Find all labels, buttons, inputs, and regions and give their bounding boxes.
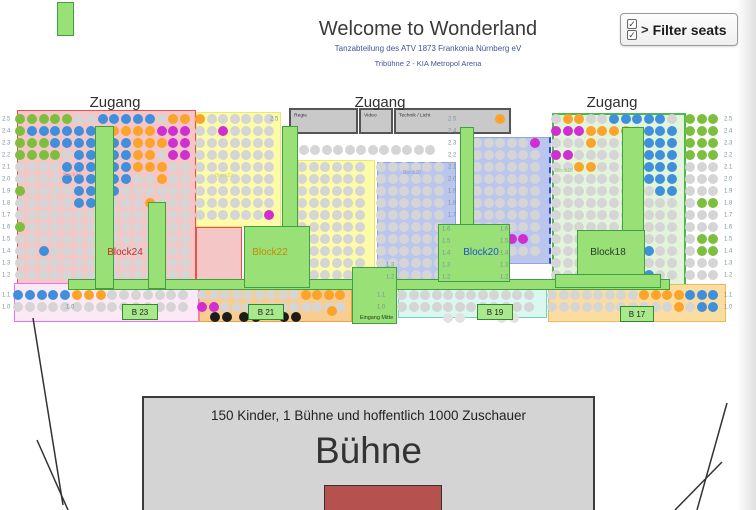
seat[interactable] bbox=[376, 186, 386, 196]
seat[interactable] bbox=[674, 302, 684, 312]
seat[interactable] bbox=[685, 150, 695, 160]
seat[interactable] bbox=[197, 290, 207, 300]
seat[interactable] bbox=[15, 222, 25, 232]
seat[interactable] bbox=[48, 302, 58, 312]
seat[interactable] bbox=[697, 186, 707, 196]
seat[interactable] bbox=[309, 222, 319, 232]
seat[interactable] bbox=[563, 258, 573, 268]
seat[interactable] bbox=[230, 126, 240, 136]
seat[interactable] bbox=[332, 186, 342, 196]
seat[interactable] bbox=[121, 198, 131, 208]
seat[interactable] bbox=[50, 222, 60, 232]
seat[interactable] bbox=[597, 198, 607, 208]
seat[interactable] bbox=[399, 246, 409, 256]
seat[interactable] bbox=[644, 138, 654, 148]
seat[interactable] bbox=[155, 290, 165, 300]
seat[interactable] bbox=[50, 138, 60, 148]
seat[interactable] bbox=[180, 222, 190, 232]
seat[interactable] bbox=[343, 210, 353, 220]
seat[interactable] bbox=[15, 114, 25, 124]
seat[interactable] bbox=[50, 186, 60, 196]
seat[interactable] bbox=[309, 174, 319, 184]
seat[interactable] bbox=[178, 290, 188, 300]
seat[interactable] bbox=[434, 174, 444, 184]
seat[interactable] bbox=[345, 145, 355, 155]
seat[interactable] bbox=[230, 198, 240, 208]
seat[interactable] bbox=[551, 138, 561, 148]
seat[interactable] bbox=[180, 186, 190, 196]
seat[interactable] bbox=[530, 150, 540, 160]
seat[interactable] bbox=[609, 138, 619, 148]
seat[interactable] bbox=[230, 114, 240, 124]
seat[interactable] bbox=[218, 186, 228, 196]
seat[interactable] bbox=[411, 246, 421, 256]
seat[interactable] bbox=[343, 246, 353, 256]
seat[interactable] bbox=[422, 174, 432, 184]
seat[interactable] bbox=[551, 114, 561, 124]
seat[interactable] bbox=[343, 234, 353, 244]
seat[interactable] bbox=[644, 114, 654, 124]
seat[interactable] bbox=[586, 126, 596, 136]
seat[interactable] bbox=[605, 290, 615, 300]
seat[interactable] bbox=[39, 150, 49, 160]
seat[interactable] bbox=[297, 210, 307, 220]
seat[interactable] bbox=[512, 302, 522, 312]
seat[interactable] bbox=[399, 258, 409, 268]
seat[interactable] bbox=[443, 290, 453, 300]
seat[interactable] bbox=[708, 222, 718, 232]
seat[interactable] bbox=[15, 210, 25, 220]
seat[interactable] bbox=[524, 290, 534, 300]
seat[interactable] bbox=[157, 186, 167, 196]
seat[interactable] bbox=[655, 234, 665, 244]
seat[interactable] bbox=[157, 150, 167, 160]
seat[interactable] bbox=[530, 210, 540, 220]
seat[interactable] bbox=[422, 198, 432, 208]
seat[interactable] bbox=[530, 174, 540, 184]
seat[interactable] bbox=[39, 270, 49, 280]
seat[interactable] bbox=[332, 258, 342, 268]
seat[interactable] bbox=[74, 114, 84, 124]
seat[interactable] bbox=[563, 186, 573, 196]
seat[interactable] bbox=[551, 198, 561, 208]
seat[interactable] bbox=[121, 186, 131, 196]
seat[interactable] bbox=[708, 258, 718, 268]
seat[interactable] bbox=[320, 222, 330, 232]
seat[interactable] bbox=[15, 246, 25, 256]
seat[interactable] bbox=[96, 290, 106, 300]
seat[interactable] bbox=[119, 290, 129, 300]
seat[interactable] bbox=[574, 198, 584, 208]
seat[interactable] bbox=[15, 270, 25, 280]
seat[interactable] bbox=[376, 234, 386, 244]
seat[interactable] bbox=[121, 258, 131, 268]
seat[interactable] bbox=[168, 162, 178, 172]
seat[interactable] bbox=[597, 162, 607, 172]
seat[interactable] bbox=[195, 198, 205, 208]
seat[interactable] bbox=[327, 306, 337, 316]
seat[interactable] bbox=[597, 138, 607, 148]
seat[interactable] bbox=[157, 114, 167, 124]
seat[interactable] bbox=[551, 126, 561, 136]
seat[interactable] bbox=[484, 198, 494, 208]
seat[interactable] bbox=[168, 174, 178, 184]
seat[interactable] bbox=[397, 302, 407, 312]
seat[interactable] bbox=[289, 290, 299, 300]
seat[interactable] bbox=[180, 258, 190, 268]
seat[interactable] bbox=[241, 138, 251, 148]
seat[interactable] bbox=[74, 198, 84, 208]
seat[interactable] bbox=[530, 222, 540, 232]
seat[interactable] bbox=[495, 198, 505, 208]
seat[interactable] bbox=[195, 126, 205, 136]
seat[interactable] bbox=[50, 174, 60, 184]
seat[interactable] bbox=[278, 290, 288, 300]
seat[interactable] bbox=[312, 290, 322, 300]
seat[interactable] bbox=[62, 114, 72, 124]
seat[interactable] bbox=[264, 162, 274, 172]
seat[interactable] bbox=[551, 222, 561, 232]
seat[interactable] bbox=[597, 150, 607, 160]
seat[interactable] bbox=[343, 162, 353, 172]
seat[interactable] bbox=[422, 258, 432, 268]
seat[interactable] bbox=[133, 114, 143, 124]
seat[interactable] bbox=[563, 150, 573, 160]
seat[interactable] bbox=[621, 114, 631, 124]
seat[interactable] bbox=[551, 174, 561, 184]
seat[interactable] bbox=[320, 186, 330, 196]
seat[interactable] bbox=[15, 138, 25, 148]
seat[interactable] bbox=[478, 290, 488, 300]
seat[interactable] bbox=[507, 138, 517, 148]
seat[interactable] bbox=[121, 174, 131, 184]
seat[interactable] bbox=[195, 210, 205, 220]
seat[interactable] bbox=[253, 186, 263, 196]
seat[interactable] bbox=[495, 162, 505, 172]
seat[interactable] bbox=[39, 222, 49, 232]
seat[interactable] bbox=[230, 162, 240, 172]
seat[interactable] bbox=[255, 290, 265, 300]
seat[interactable] bbox=[74, 222, 84, 232]
seat[interactable] bbox=[507, 174, 517, 184]
seat[interactable] bbox=[518, 150, 528, 160]
seat[interactable] bbox=[551, 210, 561, 220]
seat[interactable] bbox=[241, 150, 251, 160]
seat[interactable] bbox=[425, 145, 435, 155]
seat[interactable] bbox=[143, 290, 153, 300]
seat[interactable] bbox=[376, 246, 386, 256]
seat[interactable] bbox=[266, 290, 276, 300]
seat[interactable] bbox=[422, 162, 432, 172]
seat[interactable] bbox=[644, 210, 654, 220]
seat[interactable] bbox=[48, 290, 58, 300]
seat[interactable] bbox=[166, 302, 176, 312]
seat[interactable] bbox=[15, 234, 25, 244]
seat[interactable] bbox=[320, 234, 330, 244]
seat[interactable] bbox=[547, 302, 557, 312]
seat[interactable] bbox=[145, 162, 155, 172]
seat[interactable] bbox=[74, 162, 84, 172]
seat[interactable] bbox=[551, 246, 561, 256]
seat[interactable] bbox=[644, 198, 654, 208]
seat[interactable] bbox=[133, 162, 143, 172]
seat[interactable] bbox=[697, 290, 707, 300]
seat[interactable] bbox=[655, 222, 665, 232]
seat[interactable] bbox=[685, 222, 695, 232]
seat[interactable] bbox=[655, 162, 665, 172]
seat[interactable] bbox=[168, 186, 178, 196]
seat[interactable] bbox=[443, 302, 453, 312]
seat[interactable] bbox=[574, 186, 584, 196]
seat[interactable] bbox=[518, 138, 528, 148]
seat[interactable] bbox=[50, 258, 60, 268]
seat[interactable] bbox=[332, 210, 342, 220]
seat[interactable] bbox=[309, 198, 319, 208]
seat[interactable] bbox=[697, 222, 707, 232]
seat[interactable] bbox=[15, 186, 25, 196]
seat[interactable] bbox=[422, 246, 432, 256]
seat[interactable] bbox=[332, 174, 342, 184]
seat[interactable] bbox=[145, 150, 155, 160]
seat[interactable] bbox=[27, 126, 37, 136]
seat[interactable] bbox=[27, 258, 37, 268]
seat[interactable] bbox=[355, 246, 365, 256]
seat[interactable] bbox=[133, 126, 143, 136]
seat[interactable] bbox=[210, 312, 220, 322]
seat[interactable] bbox=[27, 162, 37, 172]
seat[interactable] bbox=[685, 270, 695, 280]
seat[interactable] bbox=[218, 198, 228, 208]
seat[interactable] bbox=[411, 234, 421, 244]
seat[interactable] bbox=[86, 114, 96, 124]
seat[interactable] bbox=[708, 126, 718, 136]
seat[interactable] bbox=[62, 162, 72, 172]
seat[interactable] bbox=[495, 210, 505, 220]
seat[interactable] bbox=[411, 222, 421, 232]
seat[interactable] bbox=[655, 126, 665, 136]
seat[interactable] bbox=[667, 114, 677, 124]
seat[interactable] bbox=[39, 198, 49, 208]
seat[interactable] bbox=[230, 138, 240, 148]
seat[interactable] bbox=[507, 162, 517, 172]
seat[interactable] bbox=[195, 186, 205, 196]
seat[interactable] bbox=[697, 246, 707, 256]
seat[interactable] bbox=[697, 162, 707, 172]
seat[interactable] bbox=[207, 162, 217, 172]
seat[interactable] bbox=[297, 198, 307, 208]
seat[interactable] bbox=[27, 210, 37, 220]
seat[interactable] bbox=[207, 210, 217, 220]
seat[interactable] bbox=[388, 174, 398, 184]
seat[interactable] bbox=[708, 114, 718, 124]
seat[interactable] bbox=[593, 290, 603, 300]
seat[interactable] bbox=[241, 162, 251, 172]
seat[interactable] bbox=[309, 162, 319, 172]
seat[interactable] bbox=[13, 302, 23, 312]
seat[interactable] bbox=[15, 258, 25, 268]
seat[interactable] bbox=[218, 114, 228, 124]
seat[interactable] bbox=[388, 162, 398, 172]
seat[interactable] bbox=[655, 258, 665, 268]
seat[interactable] bbox=[180, 126, 190, 136]
seat[interactable] bbox=[241, 198, 251, 208]
seat[interactable] bbox=[74, 234, 84, 244]
seat[interactable] bbox=[332, 198, 342, 208]
seat[interactable] bbox=[518, 234, 528, 244]
seat[interactable] bbox=[512, 290, 522, 300]
seat[interactable] bbox=[220, 302, 230, 312]
seat[interactable] bbox=[50, 246, 60, 256]
seat[interactable] bbox=[409, 290, 419, 300]
seat[interactable] bbox=[376, 198, 386, 208]
seat[interactable] bbox=[333, 145, 343, 155]
seat[interactable] bbox=[434, 162, 444, 172]
seat[interactable] bbox=[133, 234, 143, 244]
seat[interactable] bbox=[145, 126, 155, 136]
seat[interactable] bbox=[411, 186, 421, 196]
seat[interactable] bbox=[133, 174, 143, 184]
seat[interactable] bbox=[644, 234, 654, 244]
seat[interactable] bbox=[253, 210, 263, 220]
seat[interactable] bbox=[180, 114, 190, 124]
seat[interactable] bbox=[501, 290, 511, 300]
seat[interactable] bbox=[241, 114, 251, 124]
seat[interactable] bbox=[50, 198, 60, 208]
seat[interactable] bbox=[98, 114, 108, 124]
seat[interactable] bbox=[264, 210, 274, 220]
seat[interactable] bbox=[62, 150, 72, 160]
seat[interactable] bbox=[264, 198, 274, 208]
seat[interactable] bbox=[411, 258, 421, 268]
seat[interactable] bbox=[27, 150, 37, 160]
seat[interactable] bbox=[168, 246, 178, 256]
seat[interactable] bbox=[697, 138, 707, 148]
seat[interactable] bbox=[563, 222, 573, 232]
seat[interactable] bbox=[320, 258, 330, 268]
seat[interactable] bbox=[62, 186, 72, 196]
seat[interactable] bbox=[309, 246, 319, 256]
seat[interactable] bbox=[320, 210, 330, 220]
seat[interactable] bbox=[180, 138, 190, 148]
seat[interactable] bbox=[62, 210, 72, 220]
seat[interactable] bbox=[563, 174, 573, 184]
seat[interactable] bbox=[420, 290, 430, 300]
seat[interactable] bbox=[697, 302, 707, 312]
seat[interactable] bbox=[60, 290, 70, 300]
seat[interactable] bbox=[343, 186, 353, 196]
seat[interactable] bbox=[434, 210, 444, 220]
seat[interactable] bbox=[50, 114, 60, 124]
seat[interactable] bbox=[253, 174, 263, 184]
seat[interactable] bbox=[168, 222, 178, 232]
seat[interactable] bbox=[218, 126, 228, 136]
seat[interactable] bbox=[609, 150, 619, 160]
seat[interactable] bbox=[332, 162, 342, 172]
seat[interactable] bbox=[309, 234, 319, 244]
seat[interactable] bbox=[655, 114, 665, 124]
seat[interactable] bbox=[39, 126, 49, 136]
seat[interactable] bbox=[609, 114, 619, 124]
seat[interactable] bbox=[708, 302, 718, 312]
seat[interactable] bbox=[616, 290, 626, 300]
seat[interactable] bbox=[39, 114, 49, 124]
seat[interactable] bbox=[355, 222, 365, 232]
seat[interactable] bbox=[574, 126, 584, 136]
seat[interactable] bbox=[708, 210, 718, 220]
seat[interactable] bbox=[121, 138, 131, 148]
seat[interactable] bbox=[667, 234, 677, 244]
seat[interactable] bbox=[332, 234, 342, 244]
seat[interactable] bbox=[289, 302, 299, 312]
seat[interactable] bbox=[310, 145, 320, 155]
seat[interactable] bbox=[685, 246, 695, 256]
seat[interactable] bbox=[563, 138, 573, 148]
seat[interactable] bbox=[697, 270, 707, 280]
seat[interactable] bbox=[107, 302, 117, 312]
seat[interactable] bbox=[74, 246, 84, 256]
seat[interactable] bbox=[299, 145, 309, 155]
seat[interactable] bbox=[13, 290, 23, 300]
seat[interactable] bbox=[524, 302, 534, 312]
seat[interactable] bbox=[335, 290, 345, 300]
seat[interactable] bbox=[207, 126, 217, 136]
seat[interactable] bbox=[74, 138, 84, 148]
seat[interactable] bbox=[484, 162, 494, 172]
seat[interactable] bbox=[264, 150, 274, 160]
seat[interactable] bbox=[674, 290, 684, 300]
seat[interactable] bbox=[586, 198, 596, 208]
seat[interactable] bbox=[644, 222, 654, 232]
seat[interactable] bbox=[62, 126, 72, 136]
seat[interactable] bbox=[37, 302, 47, 312]
seat[interactable] bbox=[391, 145, 401, 155]
seat[interactable] bbox=[455, 313, 465, 323]
seat[interactable] bbox=[27, 186, 37, 196]
seat[interactable] bbox=[157, 174, 167, 184]
seat[interactable] bbox=[388, 210, 398, 220]
seat[interactable] bbox=[667, 222, 677, 232]
seat[interactable] bbox=[582, 302, 592, 312]
seat[interactable] bbox=[644, 150, 654, 160]
seat[interactable] bbox=[180, 234, 190, 244]
seat[interactable] bbox=[27, 222, 37, 232]
seat[interactable] bbox=[667, 174, 677, 184]
seat[interactable] bbox=[253, 198, 263, 208]
seat[interactable] bbox=[209, 302, 219, 312]
seat[interactable] bbox=[368, 145, 378, 155]
seat[interactable] bbox=[355, 186, 365, 196]
seat[interactable] bbox=[443, 313, 453, 323]
seat[interactable] bbox=[253, 126, 263, 136]
seat[interactable] bbox=[685, 186, 695, 196]
seat[interactable] bbox=[563, 126, 573, 136]
seat[interactable] bbox=[708, 270, 718, 280]
seat[interactable] bbox=[133, 150, 143, 160]
seat[interactable] bbox=[291, 312, 301, 322]
seat[interactable] bbox=[563, 210, 573, 220]
seat[interactable] bbox=[586, 114, 596, 124]
seat[interactable] bbox=[27, 114, 37, 124]
seat[interactable] bbox=[628, 290, 638, 300]
seat[interactable] bbox=[484, 150, 494, 160]
seat[interactable] bbox=[37, 290, 47, 300]
seat[interactable] bbox=[507, 198, 517, 208]
seat[interactable] bbox=[50, 162, 60, 172]
seat[interactable] bbox=[232, 290, 242, 300]
seat[interactable] bbox=[495, 114, 505, 124]
seat[interactable] bbox=[530, 246, 540, 256]
seat[interactable] bbox=[697, 210, 707, 220]
